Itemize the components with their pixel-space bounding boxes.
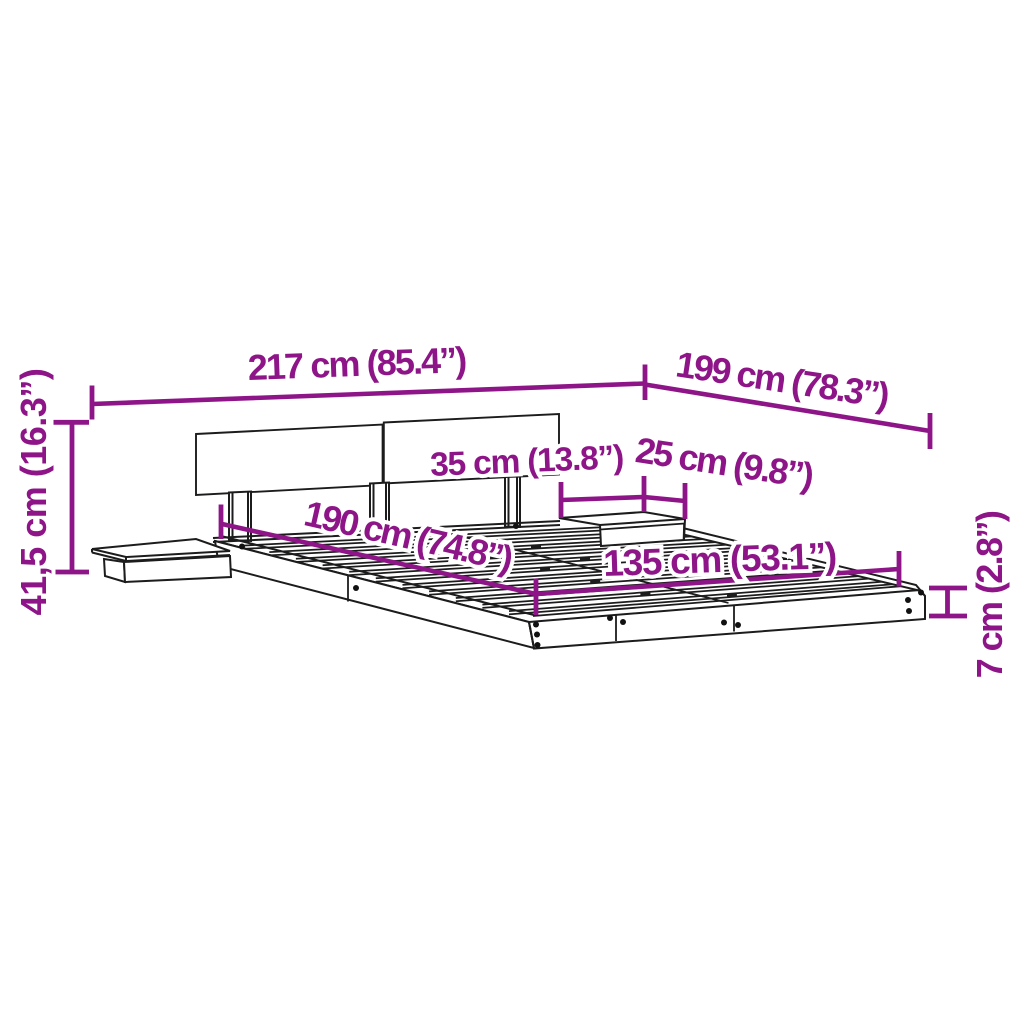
svg-text:217 cm (85.4”): 217 cm (85.4”) [247, 339, 467, 388]
svg-text:135 cm (53.1”): 135 cm (53.1”) [603, 535, 837, 584]
svg-text:7 cm (2.8”): 7 cm (2.8”) [969, 511, 1010, 678]
svg-text:41,5 cm (16.3”): 41,5 cm (16.3”) [13, 369, 54, 616]
svg-text:35 cm (13.8”): 35 cm (13.8”) [429, 439, 623, 484]
